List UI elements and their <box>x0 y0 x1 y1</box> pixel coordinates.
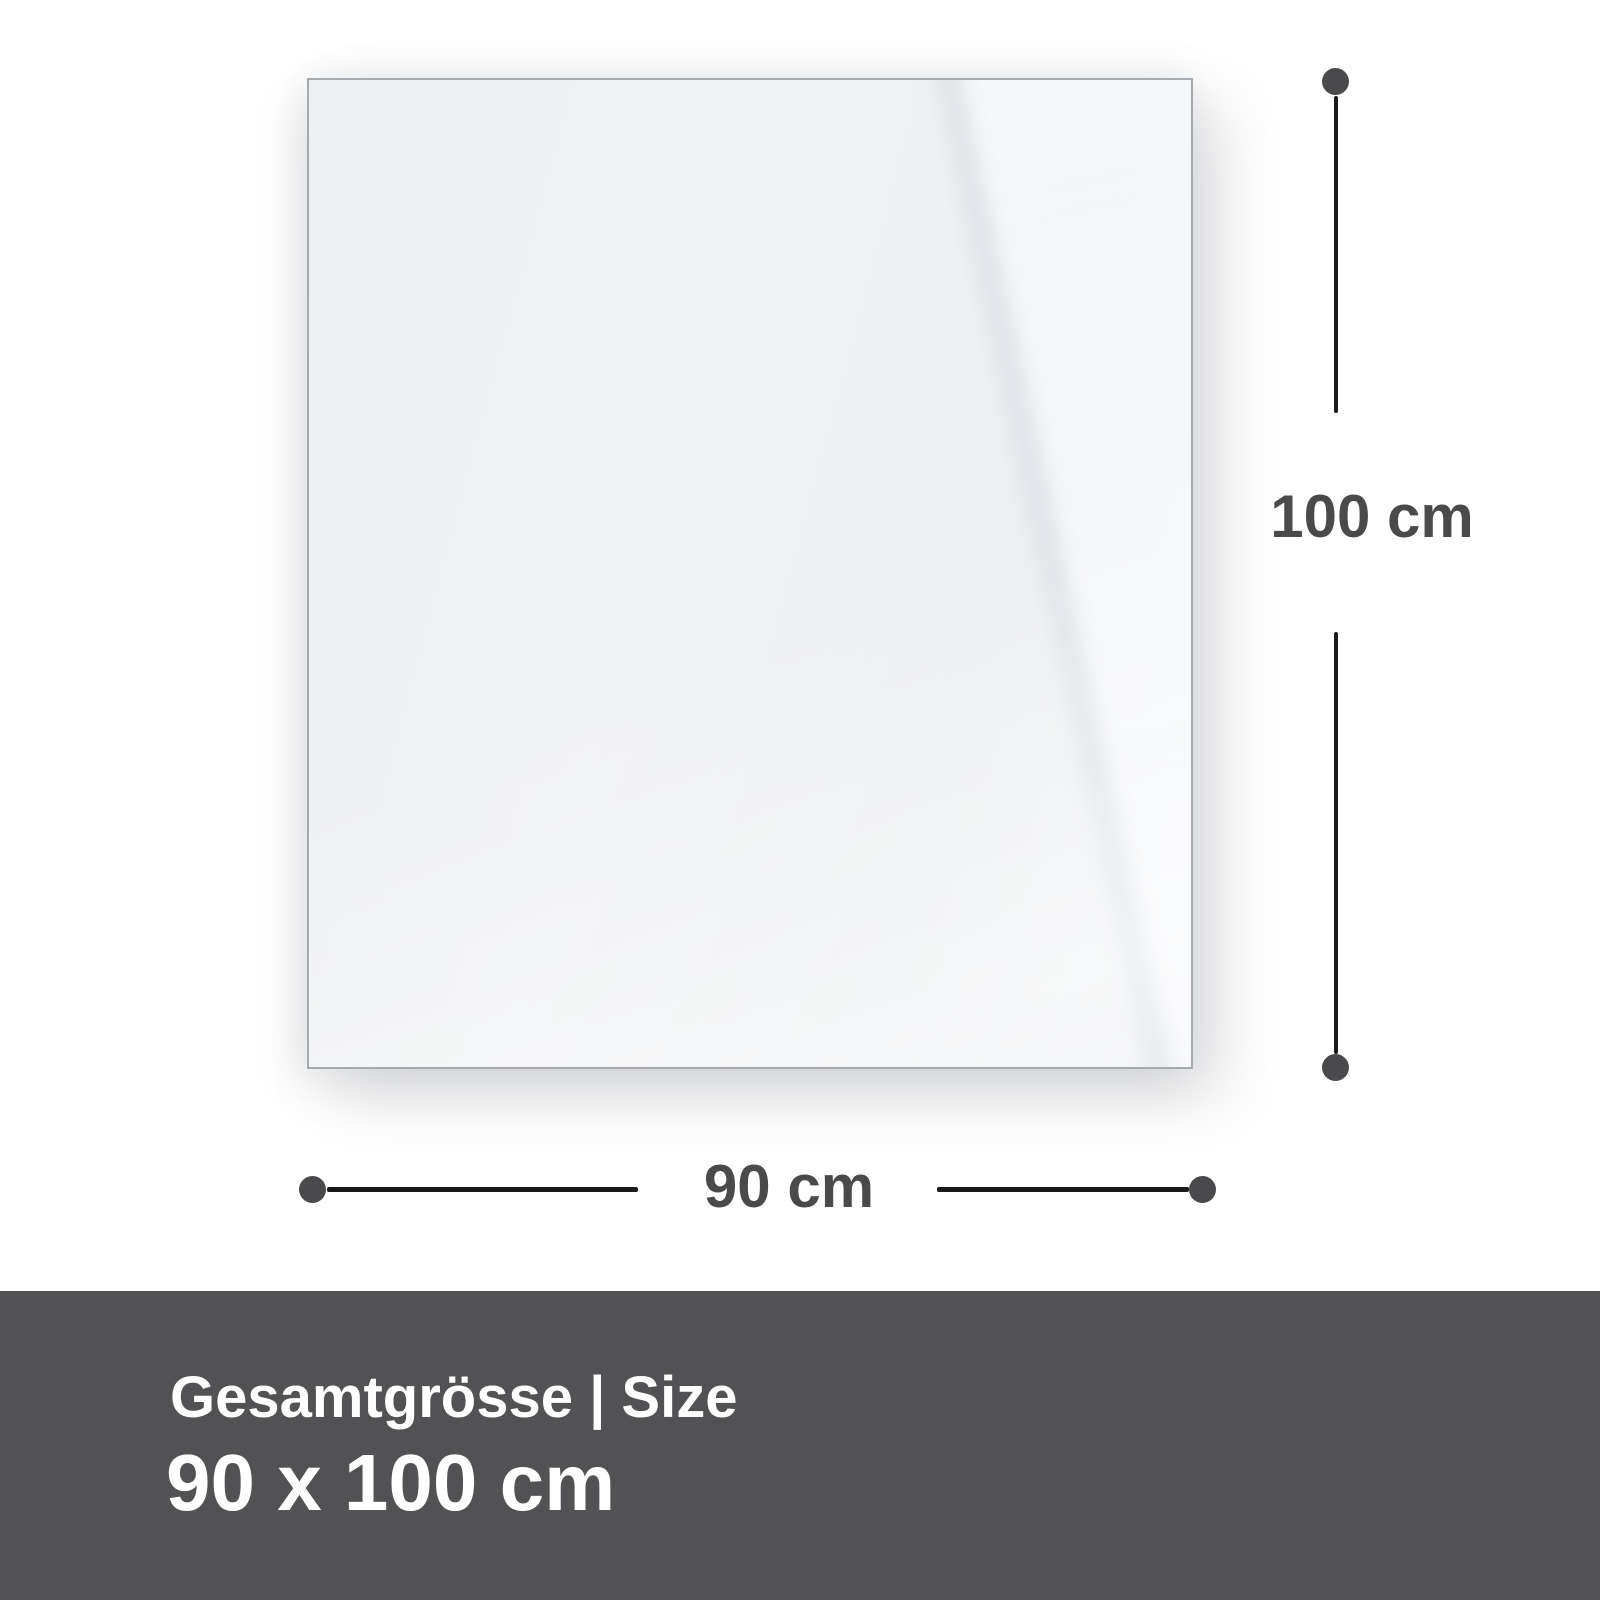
glass-panel <box>307 78 1193 1069</box>
height-dimension-line-upper <box>1334 96 1338 413</box>
footer-size-value: 90 x 100 cm <box>166 1437 615 1529</box>
dimension-endpoint-dot-top <box>1322 68 1349 95</box>
width-dimension-line-right <box>937 1187 1189 1192</box>
window-reflection <box>899 78 1193 1069</box>
dimension-endpoint-dot-right <box>1189 1176 1216 1203</box>
footer-size-title: Gesamtgrösse | Size <box>170 1365 737 1431</box>
height-label: 100 cm <box>1212 481 1532 553</box>
size-footer: Gesamtgrösse | Size 90 x 100 cm <box>0 1291 1600 1600</box>
dimension-endpoint-dot-left <box>299 1176 326 1203</box>
product-size-diagram: 100 cm 90 cm Gesamtgrösse | Size 90 x 10… <box>0 0 1600 1600</box>
dimension-endpoint-dot-bottom <box>1322 1054 1349 1081</box>
width-label: 90 cm <box>629 1151 949 1223</box>
height-dimension-line-lower <box>1334 632 1338 1054</box>
width-dimension-line-left <box>327 1187 638 1192</box>
